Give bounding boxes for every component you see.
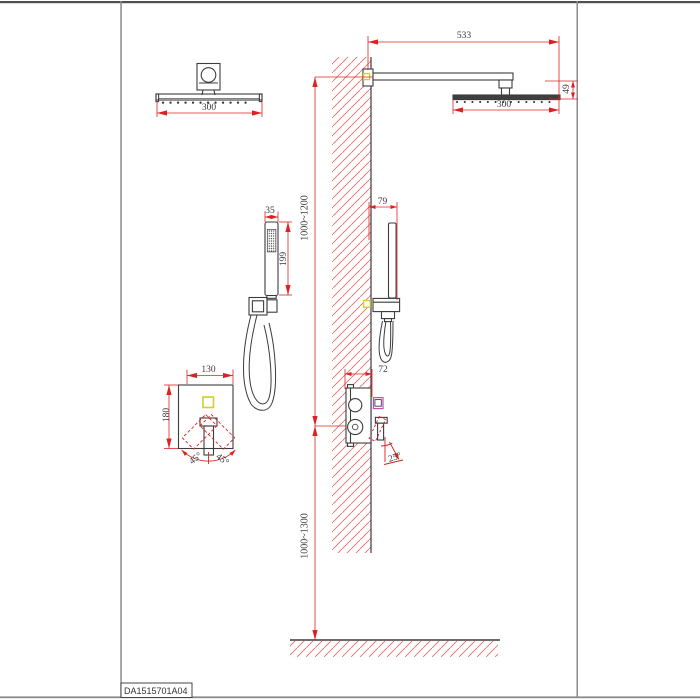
drawing-code: DA1515701A04	[124, 686, 188, 696]
side-view-valve	[346, 385, 387, 447]
dim-arm-length: 533	[457, 31, 471, 41]
dim-front-head-width: 300	[202, 103, 216, 113]
shower-installation-drawing: 300 35 199 130 180 45° 45° 533 300 49 79…	[0, 0, 700, 700]
dim-panel-height: 180	[162, 407, 172, 421]
side-view-overhead-shower	[363, 69, 560, 102]
dim-hand-shower-length: 199	[279, 252, 289, 266]
technical-drawing-canvas	[0, 0, 700, 700]
dim-side-head-width: 300	[497, 100, 511, 110]
dim-upper-height-range: 1000~1200	[300, 195, 311, 240]
front-view-overhead-shower	[156, 64, 262, 103]
floor	[290, 640, 500, 657]
dim-hand-shower-offset: 79	[378, 197, 388, 207]
dim-hand-shower-width: 35	[265, 206, 275, 216]
dim-valve-depth: 72	[378, 365, 388, 375]
dim-panel-width: 130	[201, 365, 215, 375]
front-view-hand-shower	[243, 222, 278, 410]
dim-lower-height-range: 1000~1300	[300, 513, 311, 558]
dim-head-drop: 49	[562, 84, 572, 94]
